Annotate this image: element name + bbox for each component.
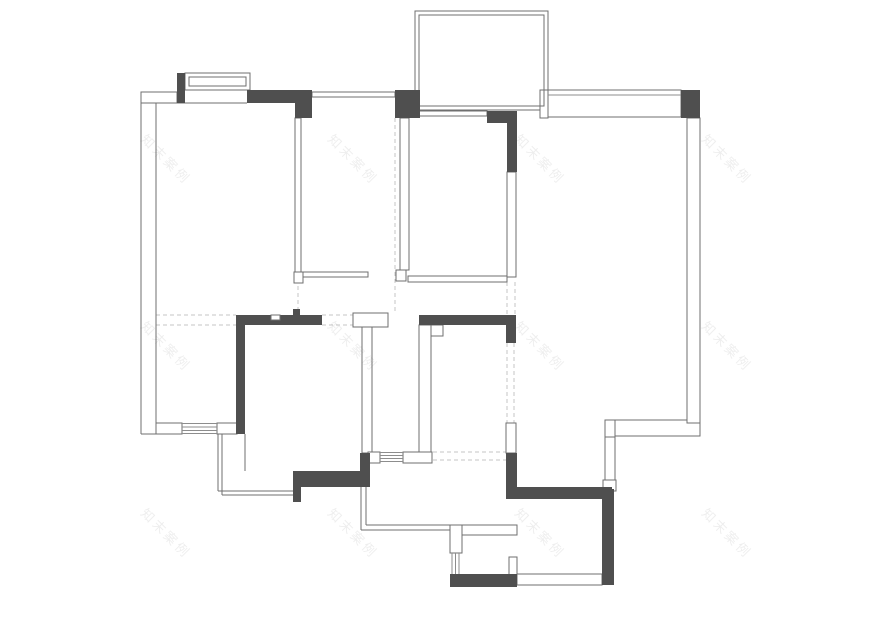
thin-wall	[605, 420, 615, 437]
dark-wall	[506, 487, 612, 499]
wall-patch-group	[271, 315, 280, 320]
thin-wall	[353, 313, 388, 327]
thin-wall	[687, 118, 700, 423]
dark-wall	[236, 325, 245, 434]
thin-wall	[294, 272, 303, 283]
thin-wall	[156, 423, 182, 434]
thin-wall	[185, 73, 250, 90]
thin-wall	[418, 111, 487, 116]
dark-wall	[177, 73, 185, 103]
thin-wall	[403, 452, 432, 463]
thin-wall	[400, 118, 409, 270]
thin-wall	[396, 270, 406, 281]
thin-wall	[217, 423, 237, 434]
wall-notch	[271, 315, 280, 320]
floor-plan-svg: 知末案例知末案例知末案例知末案例知末案例知末案例知末案例知末案例知末案例知末案例…	[0, 0, 880, 622]
thin-wall	[506, 423, 516, 453]
dark-wall	[295, 103, 312, 118]
dark-wall	[506, 453, 517, 489]
thin-wall	[295, 118, 301, 272]
thin-wall	[509, 557, 517, 575]
thin-wall	[415, 11, 548, 110]
dark-wall	[395, 90, 420, 118]
thin-wall	[303, 272, 368, 277]
thin-wall	[408, 276, 507, 282]
dark-wall	[602, 489, 614, 585]
thin-wall	[141, 92, 177, 103]
thin-wall	[548, 90, 681, 117]
dark-wall	[293, 309, 300, 316]
dark-wall	[450, 574, 517, 587]
thin-wall	[431, 325, 443, 336]
thin-wall	[507, 172, 516, 277]
dark-wall	[360, 453, 370, 487]
dark-wall	[419, 315, 516, 325]
thin-wall	[462, 525, 517, 535]
thin-wall	[419, 325, 431, 453]
thin-wall	[517, 574, 602, 585]
floor-plan-page: 知末案例知末案例知末案例知末案例知末案例知末案例知末案例知末案例知末案例知末案例…	[0, 0, 880, 622]
dark-wall	[681, 90, 700, 118]
dark-wall	[247, 90, 312, 103]
thin-wall	[605, 437, 615, 480]
dark-wall	[293, 487, 301, 502]
dark-wall	[293, 471, 360, 487]
thin-wall	[450, 525, 462, 553]
